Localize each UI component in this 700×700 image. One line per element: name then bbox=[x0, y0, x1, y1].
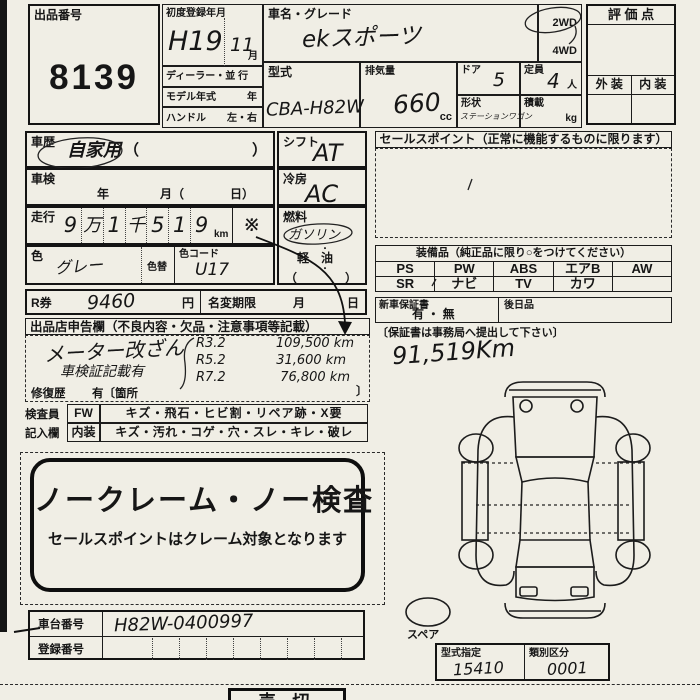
shift-box: シフト AT bbox=[277, 131, 367, 168]
equip-leather: カワ bbox=[554, 277, 613, 291]
mileage-row: 走行 9 万 1 千 5 1 9 km ※ bbox=[25, 206, 275, 245]
equip-sr: SR bbox=[376, 277, 435, 291]
first-registration-label: 初度登録年月 bbox=[166, 8, 226, 19]
mileage-digit: 1 bbox=[169, 208, 191, 243]
car-name-label: 車名・グレード bbox=[268, 8, 352, 21]
sales-point-box bbox=[375, 148, 672, 238]
model-year-row: モデル年式 年 bbox=[162, 87, 263, 107]
mileage-digit: 万 bbox=[82, 208, 104, 243]
sales-point-title: セールスポイント（正常に機能するものに限ります） bbox=[379, 133, 667, 146]
repair-history-text: 有〔箇所 bbox=[92, 388, 138, 401]
repair-history-label: 修復歴 bbox=[31, 388, 66, 401]
load-unit: kg bbox=[565, 113, 577, 124]
model-code-label: 型式 bbox=[268, 66, 292, 79]
mileage-label: 走行 bbox=[31, 211, 55, 224]
mileage-record-1: R3.2 109,500 km bbox=[196, 337, 354, 350]
name-change-day: 日 bbox=[347, 297, 359, 310]
no-claim-banner: ノークレーム・ノー検査 セールスポイントはクレーム対象となります bbox=[30, 458, 365, 592]
color-row: 色 グレー 色替 色コード U17 bbox=[25, 245, 275, 285]
shaken-label: 車検 bbox=[31, 173, 55, 186]
doors-value: 5 bbox=[493, 71, 505, 90]
capacity-label: 定員 bbox=[524, 65, 544, 76]
handle-label: ハンドル bbox=[166, 113, 206, 124]
record-brace bbox=[178, 336, 198, 391]
history-circle bbox=[28, 133, 138, 173]
declaration-header: 出品店申告欄（不良内容・欠品・注意事項等記載） bbox=[25, 318, 370, 335]
displacement-unit: cc bbox=[440, 111, 452, 123]
score-empty-cells bbox=[588, 93, 674, 123]
type-designation-table: 型式指定 15410 類別区分 0001 bbox=[435, 643, 610, 681]
type-designation-value: 15410 bbox=[453, 660, 505, 679]
score-label: 評 価 点 bbox=[608, 8, 654, 22]
record-km: 76,800 km bbox=[280, 371, 350, 384]
ac-label: 冷房 bbox=[283, 173, 307, 186]
car-top-view-diagram bbox=[430, 375, 675, 620]
rticket-row: R券 9460 円 名変期限 月 日 bbox=[25, 289, 367, 315]
shaken-cert-note: 車検証記載有 bbox=[60, 365, 144, 379]
shaken-day-label: 日） bbox=[230, 188, 254, 201]
type-designation-label: 型式指定 bbox=[441, 648, 481, 659]
scan-edge-bar bbox=[0, 0, 7, 632]
fw-cell: FW bbox=[67, 404, 100, 423]
mileage-unit: km bbox=[214, 229, 228, 240]
auction-sheet: 出品番号 8139 初度登録年月 H19 11 月 ディーラー・並 行 モデル年… bbox=[0, 0, 700, 700]
spare-label: スペア bbox=[407, 629, 439, 641]
fuel-gasoline-circle bbox=[281, 222, 357, 246]
car-name-value: ekスポーツ bbox=[302, 25, 422, 52]
record-km: 31,600 km bbox=[276, 354, 346, 367]
yen-label: 円 bbox=[182, 297, 194, 310]
mileage-digit: 千 bbox=[126, 208, 148, 243]
color-change-label: 色替 bbox=[147, 262, 167, 273]
capacity-box: 定員 4 人 bbox=[520, 62, 582, 95]
displacement-label: 排気量 bbox=[365, 66, 395, 77]
mileage-digit-cells: 9 万 1 千 5 1 9 bbox=[60, 208, 212, 243]
dealer-row: ディーラー・並 行 bbox=[162, 66, 263, 87]
equip-pw: PW bbox=[435, 262, 494, 276]
warranty-box: 新車保証書 有 ・ 無 後日品 bbox=[375, 297, 672, 323]
equip-aw: AW bbox=[613, 262, 671, 276]
model-code-value: CBA-H82W bbox=[266, 98, 365, 119]
warranty-options: 有 ・ 無 bbox=[412, 308, 455, 321]
score-subheader: 外 装 内 装 bbox=[588, 75, 674, 95]
drive-2wd-circle bbox=[505, 2, 585, 52]
declaration-title: 出品店申告欄（不良内容・欠品・注意事項等記載） bbox=[30, 321, 318, 335]
mileage-record-3: R7.2 76,800 km bbox=[196, 371, 350, 384]
load-box: 積載 kg bbox=[520, 95, 582, 128]
chassis-number-value: H82W-0400997 bbox=[114, 613, 254, 636]
lot-number-box: 出品番号 8139 bbox=[28, 4, 160, 125]
first-registration-year: H19 bbox=[168, 28, 223, 55]
mileage-digit: 9 bbox=[191, 208, 212, 243]
handle-value: 左・右 bbox=[227, 113, 257, 124]
chassis-table: 車台番号 H82W-0400997 登録番号 bbox=[28, 610, 365, 660]
exterior-label: 外 装 bbox=[596, 78, 623, 91]
displacement-value: 660 bbox=[392, 89, 441, 117]
handle-row: ハンドル 左・右 bbox=[162, 107, 263, 128]
interior-items-cell: キズ・汚れ・コゲ・穴・スレ・キレ・破レ bbox=[100, 423, 368, 442]
month-unit: 月 bbox=[248, 51, 258, 62]
sold-out-box: 売 切 bbox=[228, 688, 346, 700]
model-year-unit: 年 bbox=[247, 92, 257, 103]
shape-box: 形状 ステーションワゴン bbox=[457, 95, 520, 128]
ac-value: AC bbox=[305, 182, 338, 206]
odometer-handwritten-note: 91,519Km bbox=[391, 336, 515, 369]
sales-point-header: セールスポイント（正常に機能するものに限ります） bbox=[375, 131, 672, 148]
record-date: R3.2 bbox=[196, 337, 226, 350]
shape-label: 形状 bbox=[461, 98, 481, 109]
color-label: 色 bbox=[31, 250, 43, 263]
equip-abs: ABS bbox=[494, 262, 553, 276]
model-year-label: モデル年式 bbox=[166, 92, 216, 103]
banner-subtitle: セールスポイントはクレーム対象となります bbox=[34, 532, 361, 549]
mileage-digit: 9 bbox=[60, 208, 82, 243]
class-division-label: 類別区分 bbox=[529, 648, 569, 659]
color-code-label: 色コード bbox=[179, 249, 219, 260]
chassis-number-label: 車台番号 bbox=[38, 619, 84, 632]
sold-out-label: 売 切 bbox=[231, 693, 343, 700]
record-date: R5.2 bbox=[196, 354, 226, 367]
navi-pen-mark bbox=[430, 278, 438, 288]
later-items-label: 後日品 bbox=[504, 300, 534, 311]
interior-cell: 内装 bbox=[67, 423, 100, 442]
score-header: 評 価 点 bbox=[588, 6, 674, 25]
lot-number-label: 出品番号 bbox=[34, 9, 82, 22]
shaken-year-label: 年 bbox=[97, 188, 109, 201]
inspector-label: 検査員 bbox=[25, 409, 60, 422]
registration-number-label: 登録番号 bbox=[38, 644, 84, 657]
record-date: R7.2 bbox=[196, 371, 226, 384]
mileage-record-2: R5.2 31,600 km bbox=[196, 354, 346, 367]
name-change-month: 月 bbox=[293, 297, 305, 310]
name-change-label: 名変期限 bbox=[208, 297, 256, 310]
color-value: グレー bbox=[55, 257, 104, 276]
lot-number-value: 8139 bbox=[30, 58, 158, 98]
mileage-digit: 5 bbox=[147, 208, 169, 243]
equip-airbag: エアB bbox=[554, 262, 613, 276]
equip-tv: TV bbox=[494, 277, 553, 291]
fuel-paren: （ ） bbox=[285, 272, 357, 285]
bottom-dashed-line bbox=[0, 684, 700, 685]
ac-box: 冷房 AC bbox=[277, 168, 367, 206]
rticket-label: R券 bbox=[31, 297, 52, 310]
mileage-digit: 1 bbox=[104, 208, 126, 243]
shaken-month-label: 月（ bbox=[160, 188, 184, 201]
doors-label: ドア bbox=[461, 65, 481, 76]
equip-navi: ナビ bbox=[435, 277, 494, 291]
equipment-table: 装備品（純正品に限り○をつけてください） PS PW ABS エアB AW SR… bbox=[375, 245, 672, 292]
displacement-box: 排気量 660 cc bbox=[360, 62, 457, 128]
spare-tire-icon bbox=[403, 597, 455, 629]
color-code-value: U17 bbox=[195, 262, 229, 279]
doors-box: ドア 5 bbox=[457, 62, 520, 95]
dealer-row-label: ディーラー・並 行 bbox=[166, 71, 248, 82]
mileage-asterisk: ※ bbox=[243, 214, 261, 235]
record-km: 109,500 km bbox=[276, 337, 354, 350]
pen-dash-mark bbox=[12, 624, 42, 636]
load-label: 積載 bbox=[524, 98, 544, 109]
capacity-unit: 人 bbox=[567, 80, 577, 91]
interior-label: 内 装 bbox=[639, 78, 666, 91]
equipment-header: 装備品（純正品に限り○をつけてください） bbox=[376, 246, 671, 262]
class-division-value: 0001 bbox=[547, 660, 589, 678]
score-panel: 評 価 点 外 装 内 装 bbox=[586, 4, 676, 125]
first-registration-box: 初度登録年月 H19 11 月 bbox=[162, 4, 263, 66]
capacity-value: 4 bbox=[547, 71, 560, 91]
first-registration-divider bbox=[224, 18, 225, 66]
equip-empty bbox=[613, 277, 671, 291]
entry-column-label: 記入欄 bbox=[25, 428, 60, 441]
car-name-box: 車名・グレード ekスポーツ bbox=[263, 4, 538, 62]
fw-items-cell: キズ・飛石・ヒビ割・リペア跡・X要 bbox=[100, 404, 368, 423]
rticket-value: 9460 bbox=[87, 292, 136, 314]
shift-value: AT bbox=[313, 141, 342, 165]
shaken-row: 車検 年 月（ 日） bbox=[25, 168, 275, 206]
repair-history-close: 〕 bbox=[356, 386, 368, 399]
banner-title: ノークレーム・ノー検査 bbox=[34, 486, 361, 518]
history-paren-close: ） bbox=[252, 143, 267, 160]
pen-tick bbox=[464, 177, 476, 193]
equip-ps: PS bbox=[376, 262, 435, 276]
